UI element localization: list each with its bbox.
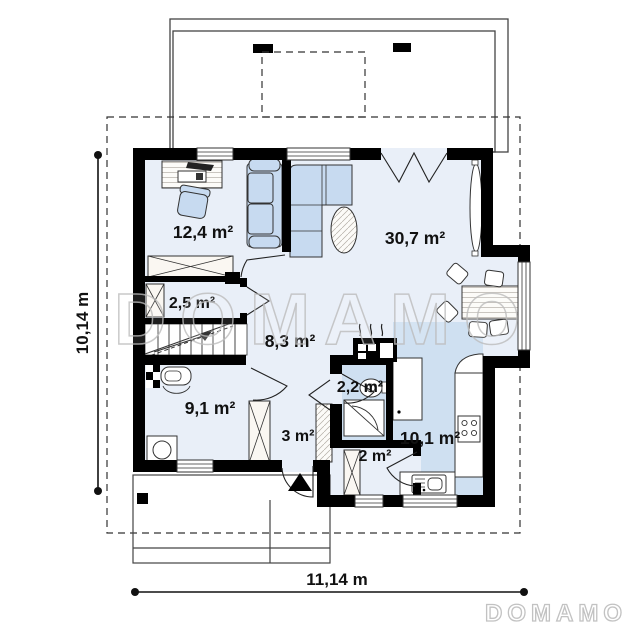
brand-logo: DOMAMO [485,600,627,627]
coffee-table-icon [331,207,357,253]
width-dimension-label: 11,14 m [306,570,367,589]
sofa-icon [247,159,282,248]
window-icon [177,460,213,472]
stove-icon [458,416,480,442]
office-chair-icon [176,185,211,220]
chimney-icon [393,43,411,52]
roof-dashed-outline [262,52,365,117]
radiator-icon [316,404,332,462]
wardrobe-icon [249,401,270,463]
terrace-outline [170,19,508,152]
dimension-line-horizontal: 11,14 m [131,570,528,596]
room-area-label: 9,1 m² [185,398,236,418]
room-area-label: 3 m² [282,428,315,445]
window-icon [287,148,350,160]
cabinet-handle-icon [397,410,400,413]
washing-machine-icon [147,436,177,464]
room-area-label: 10,1 m² [400,428,460,448]
watermark-text: DOMAMO [114,280,534,360]
room-area-label: 30,7 m² [385,228,445,248]
radiator-icon [470,160,482,256]
window-icon [403,495,457,507]
room-area-label: 12,4 m² [173,222,233,242]
desk-icon [162,161,222,188]
floor-plan-svg: 12,4 m² 30,7 m² 2,5 m² 8,3 m² 2,2 m² 9,1… [0,0,640,630]
window-icon [197,148,233,160]
room-area-label: 2 m² [359,448,392,465]
dimension-line-vertical: 10,14 m [73,151,102,495]
floor-plan-page: 12,4 m² 30,7 m² 2,5 m² 8,3 m² 2,2 m² 9,1… [0,0,640,630]
porch-post-icon [137,493,148,504]
room-area-label: 2,2 m² [337,379,383,396]
window-icon [355,495,383,507]
height-dimension-label: 10,14 m [73,292,92,354]
entrance-arrow-icon [288,473,312,491]
wardrobe-icon [148,256,233,277]
shower-icon [344,400,384,436]
